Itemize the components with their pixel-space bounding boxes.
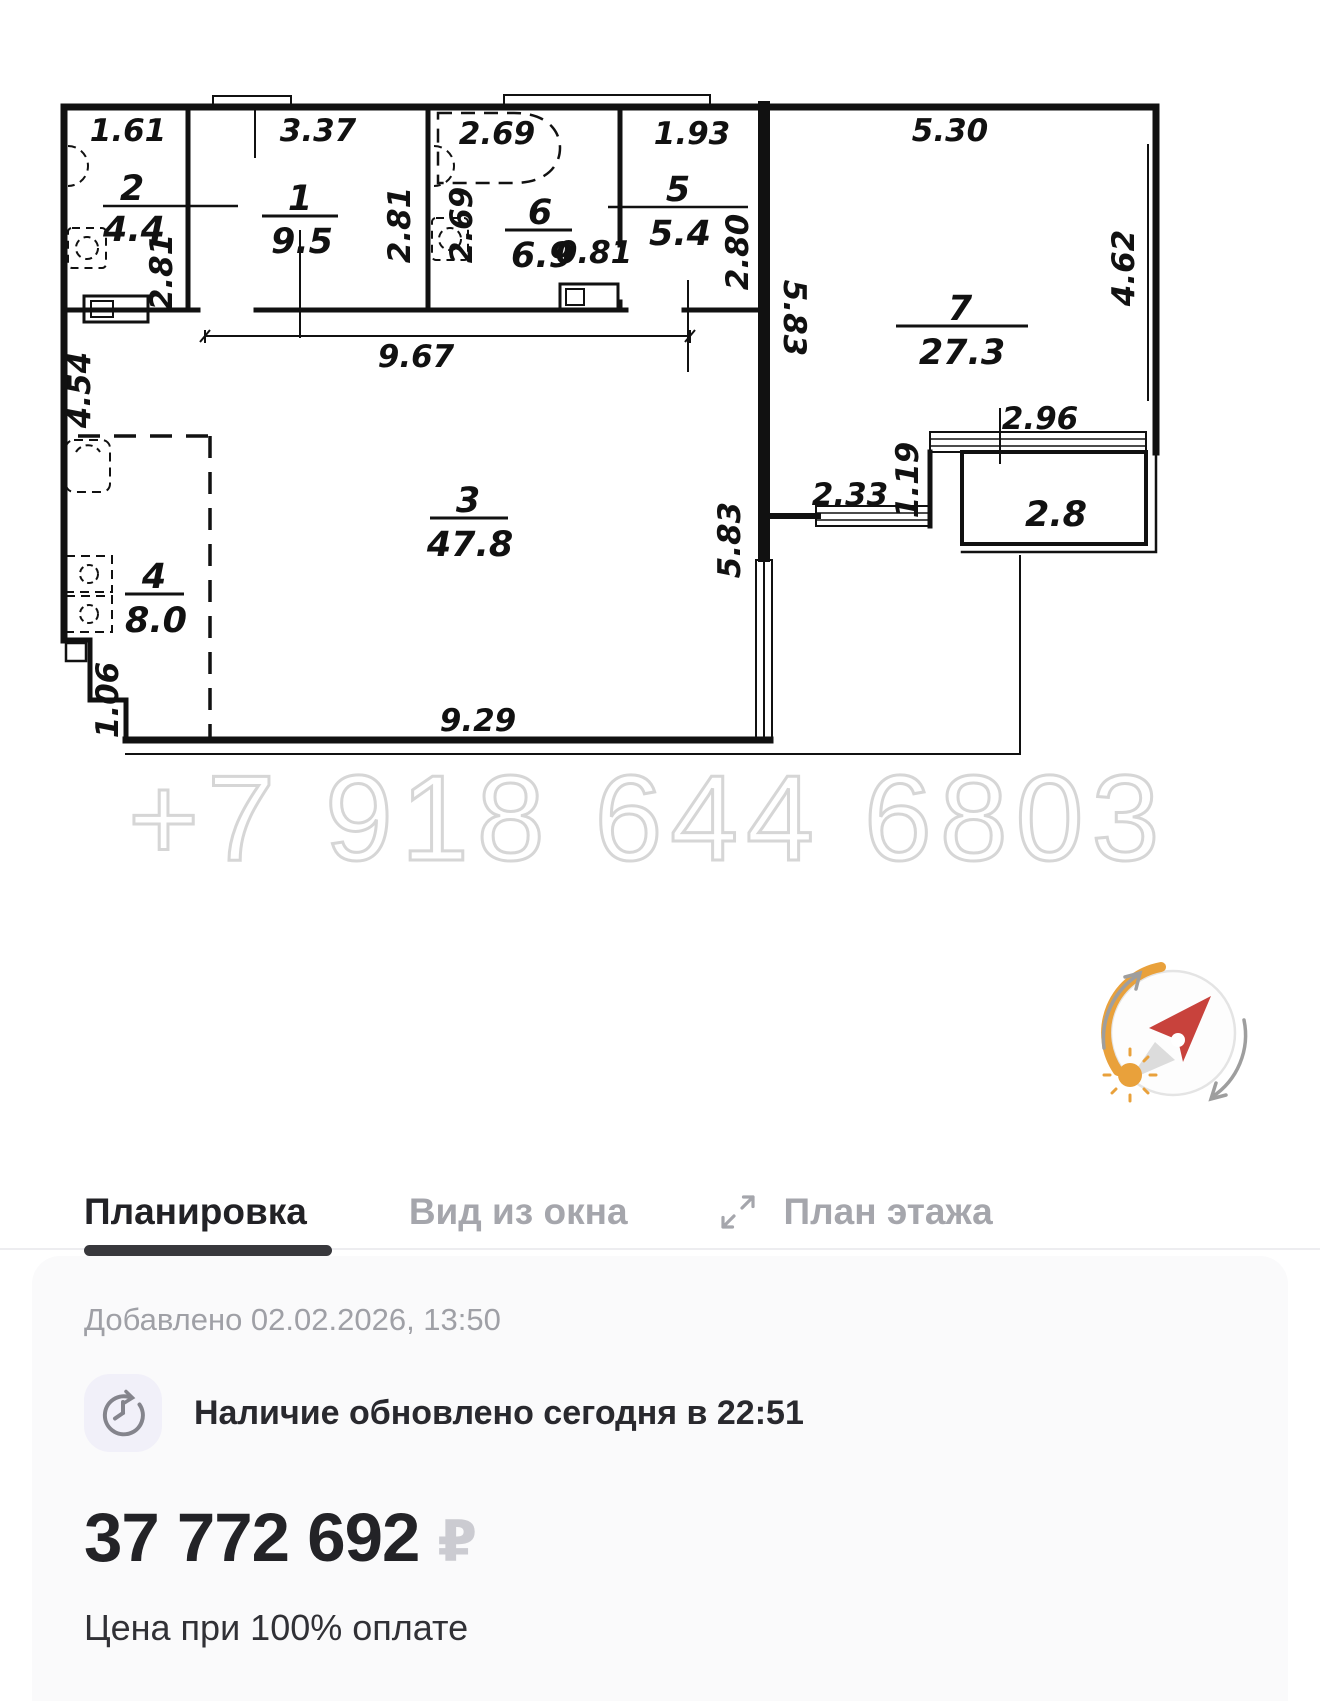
floor-plan: 1.61 3.37 2.69 1.93 5.30 2.81 2.81 2.69 … <box>0 0 1320 800</box>
dim-label: 5.83 <box>712 502 748 579</box>
gallery-tabs: Планировка Вид из окна План этажа <box>0 1168 1320 1256</box>
tab-plan-etazha[interactable]: План этажа <box>784 1191 993 1233</box>
listing-info-card: Добавлено 02.02.2026, 13:50 Наличие обно… <box>32 1256 1288 1701</box>
dim-label: 1.93 <box>654 116 731 152</box>
dim-label: 4.62 <box>1106 230 1142 308</box>
room-area: 47.8 <box>426 525 513 565</box>
phone-watermark: +7 918 644 6803 <box>128 748 1320 888</box>
price-note: Цена при 100% оплате <box>84 1607 1236 1649</box>
room-area: 4.4 <box>102 210 165 250</box>
dim-label: 9.29 <box>440 703 517 739</box>
dim-label: 1.19 <box>890 442 926 519</box>
room-area: 8.0 <box>125 601 187 641</box>
dim-label: 2.80 <box>720 214 756 291</box>
room-number: 6 <box>528 193 552 233</box>
expand-icon[interactable] <box>716 1190 760 1234</box>
tab-planirovka[interactable]: Планировка <box>84 1191 307 1233</box>
dim-label: 3.37 <box>280 113 357 149</box>
dim-label: 5.83 <box>776 280 812 357</box>
ruble-sign: ₽ <box>437 1509 477 1575</box>
room-area: 6.9 <box>511 236 573 276</box>
room-number: 5 <box>666 170 690 210</box>
room-area: 5.4 <box>649 214 711 254</box>
dimension-lines <box>103 107 1028 594</box>
dim-label: 1.06 <box>90 662 126 739</box>
price-value: 37 772 692 <box>84 1498 419 1577</box>
dim-label: 2.81 <box>382 187 418 264</box>
floorplan-viewer: 1.61 3.37 2.69 1.93 5.30 2.81 2.81 2.69 … <box>0 0 1320 1168</box>
balcony-area: 2.8 <box>1025 495 1087 535</box>
clock-refresh-icon <box>98 1388 148 1438</box>
price-row: 37 772 692 ₽ <box>84 1498 1236 1577</box>
room-number: 3 <box>456 481 480 521</box>
tab-vid-iz-okna[interactable]: Вид из окна <box>409 1191 628 1233</box>
clock-badge <box>84 1374 162 1452</box>
dim-label: 2.69 <box>444 187 480 264</box>
dim-label: 2.96 <box>1002 401 1079 437</box>
walls <box>64 95 1156 754</box>
dim-label: 9.67 <box>378 339 455 375</box>
dim-label: 5.30 <box>912 113 989 149</box>
dim-label: 1.61 <box>90 113 167 149</box>
compass-icon <box>1008 925 1258 1150</box>
dim-label: 2.69 <box>459 116 536 152</box>
room-area: 9.5 <box>271 222 333 262</box>
room-area: 27.3 <box>919 333 1005 373</box>
added-date: Добавлено 02.02.2026, 13:50 <box>84 1302 1236 1338</box>
availability-text: Наличие обновлено сегодня в 22:51 <box>194 1394 804 1433</box>
active-tab-indicator <box>84 1245 332 1256</box>
dim-label: 2.33 <box>812 477 889 513</box>
room-number: 7 <box>948 289 973 329</box>
room-number: 2 <box>120 169 144 209</box>
room-number: 4 <box>141 557 166 597</box>
dim-label: 4.54 <box>62 352 98 430</box>
room-number: 1 <box>288 179 312 219</box>
availability-row: Наличие обновлено сегодня в 22:51 <box>84 1374 1236 1452</box>
